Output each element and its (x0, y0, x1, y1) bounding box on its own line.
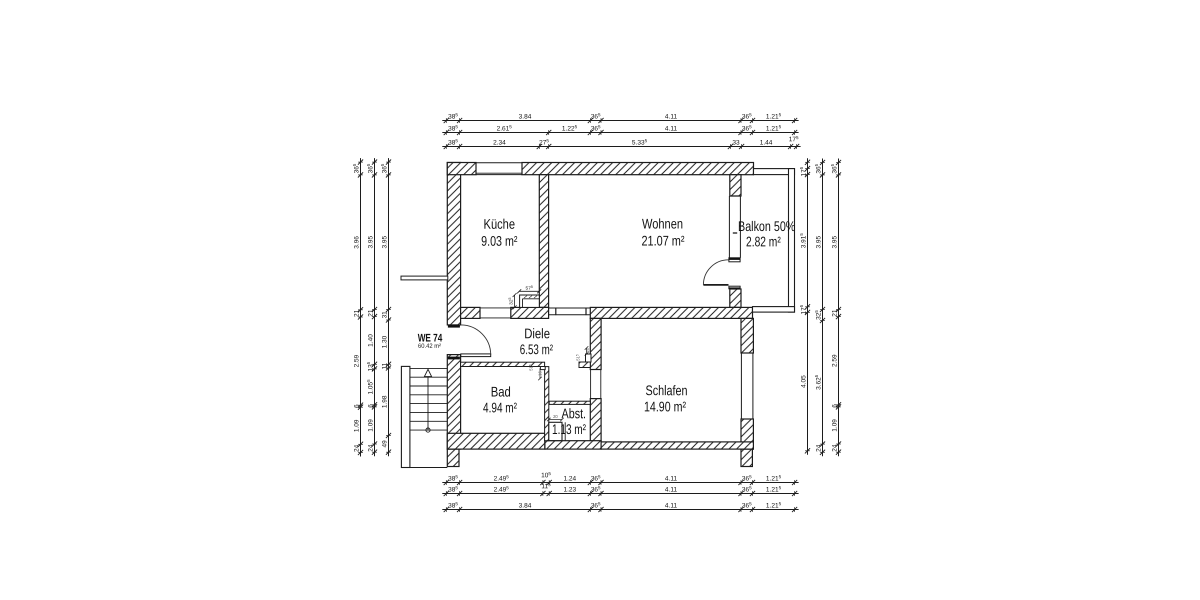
svg-text:1.40: 1.40 (367, 334, 374, 347)
svg-text:4.11: 4.11 (665, 475, 678, 482)
svg-text:31: 31 (381, 311, 388, 319)
svg-text:2.59: 2.59 (353, 354, 360, 367)
svg-text:3.96: 3.96 (353, 236, 360, 249)
svg-text:1.98: 1.98 (381, 395, 388, 408)
svg-text:3.84: 3.84 (519, 113, 532, 120)
svg-text:1.23: 1.23 (563, 486, 576, 493)
svg-text:21: 21 (353, 309, 360, 317)
svg-text:1.30: 1.30 (381, 335, 388, 348)
svg-text:1.09: 1.09 (353, 419, 360, 432)
svg-text:3.95: 3.95 (367, 235, 374, 248)
svg-text:9.03 m²: 9.03 m² (481, 233, 518, 249)
svg-text:2.59: 2.59 (831, 354, 838, 367)
svg-text:Abst.: Abst. (562, 405, 587, 421)
svg-text:Wohnen: Wohnen (642, 215, 683, 231)
svg-text:21.07 m²: 21.07 m² (641, 232, 684, 248)
svg-text:2.34: 2.34 (493, 139, 506, 146)
svg-text:21: 21 (831, 309, 838, 317)
svg-text:16: 16 (585, 348, 590, 353)
svg-text:4.11: 4.11 (665, 502, 678, 509)
svg-text:3.95: 3.95 (815, 235, 822, 248)
svg-text:14.90 m²: 14.90 m² (644, 398, 686, 414)
svg-text:1.09: 1.09 (367, 419, 374, 432)
svg-text:24: 24 (831, 444, 838, 452)
svg-text:Diele: Diele (524, 325, 550, 341)
svg-text:2.82 m²: 2.82 m² (746, 233, 781, 249)
svg-text:4.94 m²: 4.94 m² (483, 399, 517, 415)
svg-text:3.95: 3.95 (381, 235, 388, 248)
svg-text:4.05: 4.05 (800, 375, 807, 388)
svg-text:11: 11 (381, 362, 388, 369)
svg-text:1.24: 1.24 (563, 475, 576, 482)
svg-text:20: 20 (553, 414, 558, 419)
svg-text:4.11: 4.11 (665, 486, 678, 493)
svg-text:1.09: 1.09 (831, 419, 838, 432)
svg-text:1.44: 1.44 (760, 139, 773, 146)
svg-text:6.53 m²: 6.53 m² (520, 341, 553, 357)
svg-text:3.95: 3.95 (831, 235, 838, 248)
svg-text:24: 24 (815, 444, 822, 452)
svg-text:4.11: 4.11 (665, 113, 678, 120)
svg-text:24: 24 (353, 444, 360, 452)
svg-text:60.42 m²: 60.42 m² (418, 343, 441, 350)
svg-text:Balkon 50%: Balkon 50% (738, 218, 795, 234)
svg-text:21: 21 (367, 309, 374, 317)
svg-text:33: 33 (732, 139, 740, 146)
svg-text:Bad: Bad (491, 383, 511, 399)
svg-text:16: 16 (538, 371, 543, 376)
svg-text:6: 6 (831, 404, 838, 408)
svg-text:24: 24 (367, 444, 374, 452)
svg-text:1.13 m²: 1.13 m² (552, 421, 586, 437)
svg-text:49: 49 (381, 440, 388, 448)
svg-text:4.11: 4.11 (665, 125, 678, 132)
svg-text:Schlafen: Schlafen (645, 382, 687, 398)
svg-text:6: 6 (367, 404, 374, 408)
svg-text:3.84: 3.84 (519, 502, 532, 509)
svg-text:Küche: Küche (484, 216, 516, 232)
svg-text:6: 6 (353, 404, 360, 408)
